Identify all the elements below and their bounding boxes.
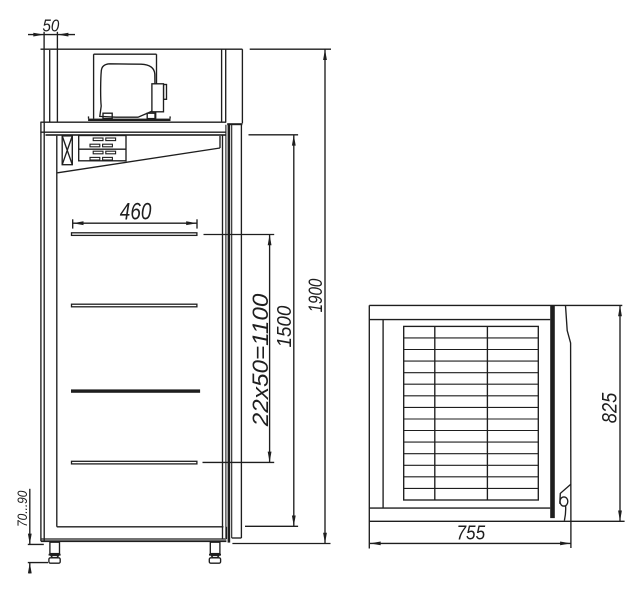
svg-text:22x50=1100: 22x50=1100 — [248, 294, 273, 428]
svg-text:1900: 1900 — [304, 278, 326, 312]
svg-text:70...90: 70...90 — [14, 490, 30, 527]
svg-text:1500: 1500 — [273, 306, 296, 348]
svg-text:825: 825 — [598, 393, 621, 424]
svg-text:50: 50 — [43, 15, 60, 36]
svg-text:755: 755 — [457, 521, 486, 544]
svg-text:460: 460 — [120, 198, 152, 226]
